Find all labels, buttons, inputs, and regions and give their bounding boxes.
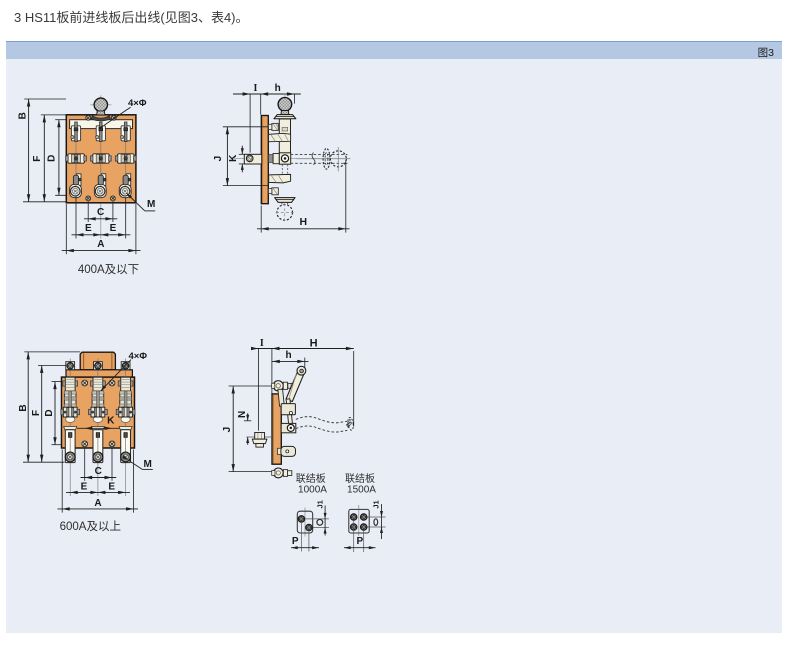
svg-text:1500A: 1500A	[347, 484, 376, 495]
svg-text:4×Φ: 4×Φ	[128, 98, 147, 109]
svg-text:N: N	[237, 411, 248, 418]
svg-text:联结板: 联结板	[345, 472, 375, 485]
svg-text:M: M	[147, 199, 155, 210]
svg-text:D: D	[44, 409, 55, 416]
svg-text:600A及以上: 600A及以上	[60, 520, 121, 533]
svg-text:C: C	[95, 466, 102, 477]
svg-text:A: A	[97, 239, 104, 250]
svg-text:E: E	[108, 481, 115, 492]
svg-text:E: E	[110, 223, 117, 234]
svg-text:J: J	[222, 427, 233, 433]
svg-text:J1: J1	[316, 500, 325, 508]
svg-text:h: h	[275, 83, 281, 94]
svg-text:400A及以下: 400A及以下	[78, 263, 139, 276]
svg-text:P: P	[356, 536, 363, 547]
svg-text:M: M	[144, 459, 152, 470]
svg-text:1000A: 1000A	[298, 484, 327, 495]
svg-text:4×Φ: 4×Φ	[128, 351, 147, 362]
svg-text:F: F	[31, 410, 42, 416]
svg-text:D: D	[46, 155, 57, 162]
svg-text:C: C	[97, 207, 104, 218]
svg-text:I: I	[253, 83, 257, 94]
svg-text:A: A	[94, 498, 101, 509]
svg-text:F: F	[32, 156, 43, 162]
svg-text:h: h	[286, 350, 292, 361]
svg-text:联结板: 联结板	[296, 472, 326, 485]
svg-text:B: B	[18, 404, 29, 411]
svg-text:B: B	[18, 112, 29, 119]
svg-text:I: I	[260, 338, 264, 349]
svg-text:J1: J1	[371, 500, 380, 508]
svg-text:H: H	[310, 337, 318, 349]
svg-text:E: E	[81, 481, 88, 492]
svg-text:J: J	[213, 156, 224, 162]
svg-text:K: K	[228, 154, 239, 162]
svg-text:E: E	[85, 223, 92, 234]
svg-text:H: H	[300, 216, 308, 228]
svg-text:K: K	[107, 416, 115, 427]
svg-text:P: P	[292, 536, 299, 547]
